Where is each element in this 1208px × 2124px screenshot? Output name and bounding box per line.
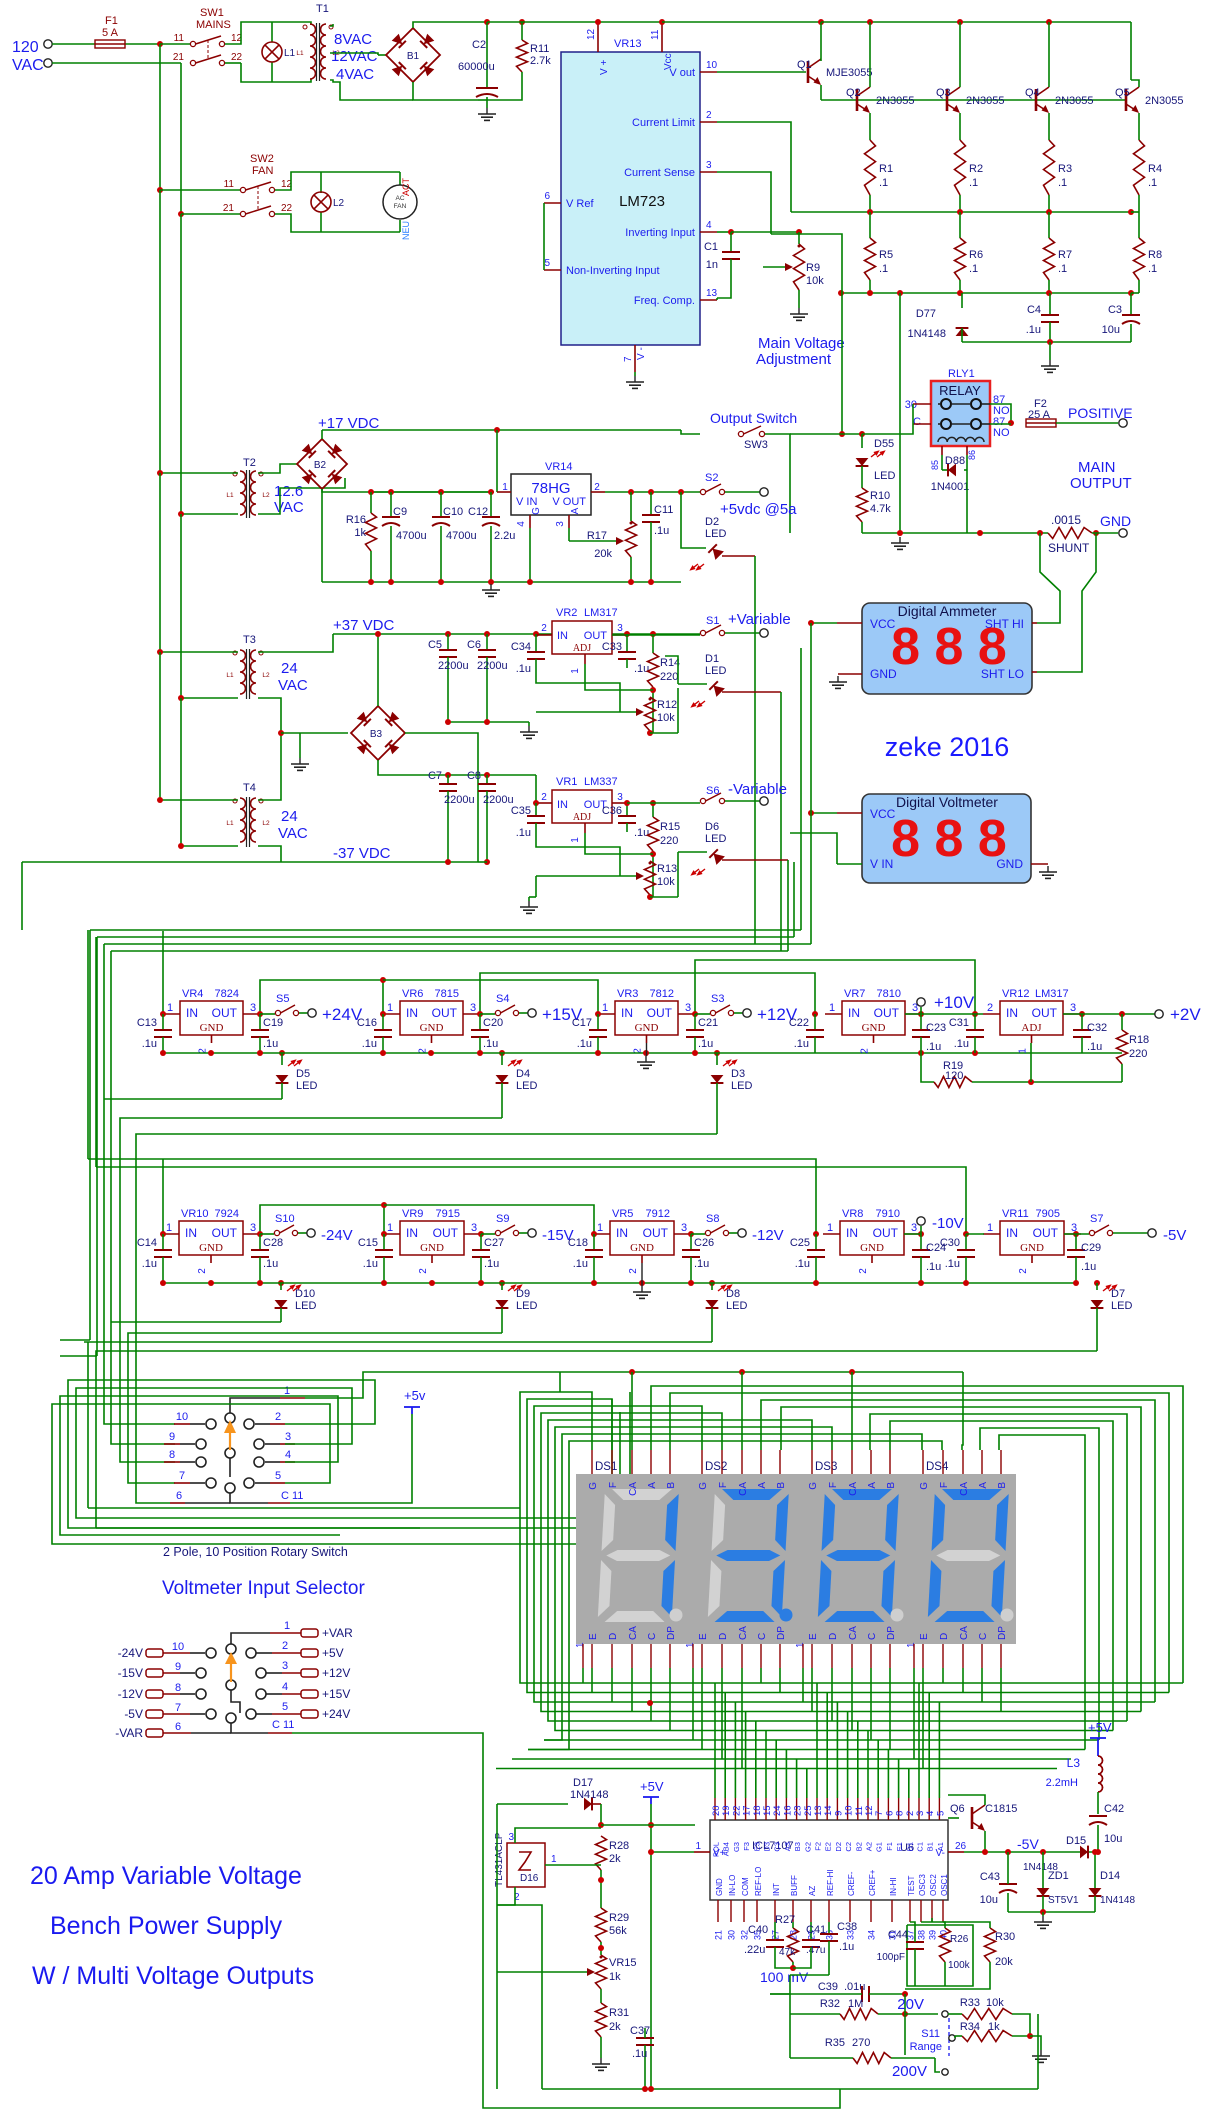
- svg-text:-5V: -5V: [124, 1707, 143, 1721]
- svg-text:Q3: Q3: [936, 87, 951, 99]
- svg-text:2200u: 2200u: [444, 794, 475, 806]
- svg-text:E1: E1: [895, 1842, 904, 1851]
- svg-text:3: 3: [471, 1222, 477, 1234]
- svg-text:21: 21: [223, 203, 235, 214]
- svg-text:C30: C30: [940, 1237, 960, 1249]
- svg-text:GND: GND: [199, 1242, 223, 1254]
- svg-text:C15: C15: [358, 1237, 378, 1249]
- svg-text:C10: C10: [443, 506, 463, 518]
- svg-text:26: 26: [955, 1841, 967, 1852]
- svg-text:C3: C3: [773, 1842, 782, 1852]
- svg-text:.1u: .1u: [839, 1941, 854, 1953]
- svg-text:G: G: [808, 1482, 819, 1490]
- svg-text:L1: L1: [226, 820, 234, 827]
- svg-text:.1: .1: [1058, 263, 1067, 275]
- svg-text:OUT: OUT: [433, 1226, 459, 1240]
- svg-text:C7: C7: [428, 770, 442, 782]
- svg-text:VR10: VR10: [181, 1208, 209, 1220]
- svg-text:B3: B3: [793, 1842, 802, 1851]
- svg-text:24: 24: [281, 808, 298, 825]
- svg-text:3: 3: [911, 1222, 917, 1234]
- svg-text:Freq. Comp.: Freq. Comp.: [634, 295, 695, 307]
- svg-text:GND: GND: [200, 1022, 224, 1034]
- svg-text:3: 3: [617, 623, 623, 634]
- svg-text:SHUNT: SHUNT: [1048, 541, 1090, 555]
- svg-text:VR1: VR1: [556, 776, 577, 788]
- svg-text:1k: 1k: [354, 527, 366, 539]
- svg-text:LM317: LM317: [584, 607, 618, 619]
- svg-text:IN: IN: [1006, 1006, 1018, 1020]
- svg-text:4.7k: 4.7k: [870, 503, 891, 515]
- svg-text:zeke 2016: zeke 2016: [885, 732, 1010, 762]
- svg-text:Range: Range: [910, 2041, 942, 2053]
- svg-text:100pF: 100pF: [877, 1952, 905, 1963]
- svg-text:A3: A3: [783, 1842, 792, 1851]
- svg-text:C36: C36: [602, 805, 622, 817]
- svg-text:C17: C17: [572, 1017, 592, 1029]
- svg-text:39: 39: [928, 1930, 938, 1940]
- svg-text:.1: .1: [1148, 177, 1157, 189]
- svg-text:VAC: VAC: [278, 825, 308, 842]
- svg-text:.1: .1: [1058, 177, 1067, 189]
- svg-text:C2: C2: [472, 39, 486, 51]
- svg-text:1: 1: [575, 1642, 586, 1648]
- svg-text:-37 VDC: -37 VDC: [333, 845, 391, 862]
- svg-text:B: B: [886, 1482, 897, 1489]
- svg-text:.1u: .1u: [516, 827, 531, 839]
- svg-text:4VAC: 4VAC: [336, 66, 374, 83]
- svg-text:OSC1: OSC1: [940, 1874, 949, 1896]
- svg-text:S2: S2: [705, 472, 718, 484]
- svg-text:LED: LED: [1111, 1300, 1132, 1312]
- svg-text:9: 9: [175, 1661, 181, 1673]
- svg-text:2.7k: 2.7k: [530, 55, 551, 67]
- svg-text:.1u: .1u: [795, 1258, 810, 1270]
- svg-text:7912: 7912: [646, 1208, 670, 1220]
- svg-text:R8: R8: [1148, 249, 1162, 261]
- svg-text:C11: C11: [654, 504, 673, 516]
- svg-text:F2: F2: [814, 1842, 823, 1851]
- svg-text:8 8 8: 8 8 8: [891, 618, 1007, 676]
- svg-text:L1: L1: [226, 672, 234, 679]
- svg-text:IN-HI: IN-HI: [889, 1877, 898, 1896]
- svg-text:120: 120: [945, 1070, 963, 1082]
- svg-text:34: 34: [867, 1930, 877, 1940]
- svg-text:Main Voltage: Main Voltage: [758, 335, 845, 352]
- svg-text:R29: R29: [609, 1912, 629, 1924]
- svg-text:10k: 10k: [657, 876, 675, 888]
- svg-text:L2: L2: [333, 198, 345, 209]
- svg-text:3: 3: [706, 160, 712, 171]
- svg-text:C16: C16: [357, 1017, 377, 1029]
- svg-text:C32: C32: [1087, 1022, 1107, 1034]
- svg-text:1: 1: [829, 1002, 835, 1014]
- svg-text:R5: R5: [879, 249, 893, 261]
- svg-text:A: A: [570, 507, 581, 514]
- svg-text:LED: LED: [731, 1080, 752, 1092]
- svg-text:D9: D9: [516, 1288, 530, 1300]
- svg-text:8VAC: 8VAC: [334, 31, 372, 48]
- svg-text:2k: 2k: [609, 1853, 621, 1865]
- svg-text:8 8 8: 8 8 8: [891, 810, 1007, 868]
- svg-text:56k: 56k: [609, 1925, 627, 1937]
- svg-text:C4: C4: [1027, 304, 1041, 316]
- svg-text:GND: GND: [1020, 1242, 1044, 1254]
- svg-text:C44: C44: [888, 1929, 908, 1941]
- svg-text:CA: CA: [848, 1626, 859, 1640]
- svg-text:C14: C14: [137, 1237, 157, 1249]
- svg-text:GND: GND: [420, 1242, 444, 1254]
- svg-text:+5V: +5V: [640, 1779, 664, 1794]
- svg-text:OUTPUT: OUTPUT: [1070, 475, 1132, 492]
- svg-text:AB4: AB4: [722, 1842, 731, 1856]
- svg-text:D15: D15: [1066, 1835, 1086, 1847]
- svg-text:D2: D2: [705, 516, 719, 528]
- svg-text:IN: IN: [186, 1006, 198, 1020]
- svg-text:SW2: SW2: [250, 153, 274, 165]
- svg-text:7812: 7812: [650, 988, 674, 1000]
- svg-text:R30: R30: [995, 1931, 1015, 1943]
- svg-text:CA: CA: [628, 1482, 639, 1496]
- svg-text:C31: C31: [949, 1017, 969, 1029]
- svg-text:.1: .1: [879, 263, 888, 275]
- svg-text:.1: .1: [969, 263, 978, 275]
- svg-text:D55: D55: [874, 438, 894, 450]
- svg-text:.1u: .1u: [1081, 1261, 1096, 1273]
- svg-text:Adjustment: Adjustment: [756, 351, 832, 368]
- svg-text:C1: C1: [704, 241, 718, 253]
- svg-text:100k: 100k: [948, 1960, 971, 1971]
- svg-text:GND: GND: [1100, 513, 1131, 529]
- svg-text:10u: 10u: [1104, 1833, 1122, 1845]
- svg-text:COM: COM: [741, 1877, 750, 1896]
- svg-text:S3: S3: [711, 993, 724, 1005]
- svg-text:T3: T3: [243, 634, 256, 646]
- svg-text:V IN: V IN: [870, 857, 893, 871]
- svg-text:C23: C23: [926, 1022, 946, 1034]
- svg-text:DP: DP: [666, 1626, 677, 1640]
- svg-text:IN: IN: [616, 1226, 628, 1240]
- svg-text:7: 7: [179, 1470, 185, 1482]
- svg-text:DS2: DS2: [705, 1461, 727, 1473]
- svg-text:10k: 10k: [657, 712, 675, 724]
- svg-text:.1u: .1u: [484, 1258, 499, 1270]
- svg-text:OSC2: OSC2: [929, 1874, 938, 1896]
- svg-text:NO: NO: [993, 427, 1010, 439]
- svg-text:DS3: DS3: [815, 1461, 837, 1473]
- svg-text:78HG: 78HG: [531, 480, 570, 497]
- svg-text:6: 6: [544, 191, 550, 202]
- svg-text:7810: 7810: [877, 988, 901, 1000]
- svg-text:R26: R26: [950, 1934, 969, 1945]
- svg-text:3: 3: [250, 1222, 256, 1234]
- svg-text:.1u: .1u: [362, 1038, 377, 1050]
- svg-text:IN: IN: [557, 630, 568, 642]
- svg-text:Voltmeter Input Selector: Voltmeter Input Selector: [162, 1578, 365, 1599]
- svg-text:E3: E3: [752, 1842, 761, 1851]
- svg-text:D14: D14: [1100, 1870, 1120, 1882]
- svg-text:VR6: VR6: [402, 988, 423, 1000]
- svg-text:IN: IN: [406, 1226, 418, 1240]
- svg-text:R14: R14: [660, 657, 680, 669]
- svg-text:CA: CA: [738, 1482, 749, 1496]
- svg-text:R12: R12: [657, 699, 677, 711]
- svg-text:C43: C43: [980, 1871, 1000, 1883]
- svg-text:.1: .1: [1148, 263, 1157, 275]
- svg-text:1: 1: [987, 1222, 993, 1234]
- svg-text:C1815: C1815: [985, 1803, 1017, 1815]
- svg-text:47k: 47k: [779, 1947, 796, 1958]
- svg-text:2: 2: [706, 110, 712, 121]
- svg-text:C40: C40: [748, 1924, 768, 1936]
- svg-text:G3: G3: [732, 1842, 741, 1852]
- svg-text:2: 2: [275, 1411, 281, 1423]
- svg-text:ADJ: ADJ: [573, 643, 591, 654]
- svg-text:22: 22: [231, 52, 243, 63]
- svg-text:.1u: .1u: [142, 1038, 157, 1050]
- svg-text:IN: IN: [557, 799, 568, 811]
- svg-text:F: F: [718, 1482, 729, 1488]
- svg-text:W / Multi Voltage Outputs: W / Multi Voltage Outputs: [32, 1962, 314, 1990]
- svg-text:+5V: +5V: [322, 1646, 344, 1660]
- svg-text:B: B: [666, 1482, 677, 1489]
- svg-text:R35: R35: [825, 2037, 845, 2049]
- svg-text:ST5V1: ST5V1: [1048, 1895, 1079, 1906]
- svg-text:SW3: SW3: [744, 439, 768, 451]
- svg-text:Q1: Q1: [797, 59, 812, 71]
- svg-text:120: 120: [12, 39, 39, 56]
- svg-text:OUT: OUT: [212, 1006, 238, 1020]
- svg-text:REF-LO: REF-LO: [754, 1867, 763, 1896]
- svg-text:3: 3: [617, 792, 623, 803]
- svg-text:DP: DP: [886, 1626, 897, 1640]
- svg-text:Output Switch: Output Switch: [710, 410, 797, 426]
- svg-text:LED: LED: [705, 665, 726, 677]
- svg-text:.1u: .1u: [634, 663, 649, 675]
- svg-text:2.2mH: 2.2mH: [1046, 1777, 1078, 1789]
- svg-text:CREF+: CREF+: [868, 1869, 877, 1896]
- svg-text:CREF-: CREF-: [847, 1871, 856, 1896]
- svg-text:1n: 1n: [706, 259, 718, 271]
- svg-text:R16: R16: [346, 514, 366, 526]
- svg-text:2: 2: [418, 1268, 429, 1274]
- svg-text:TL431ACLP: TL431ACLP: [494, 1832, 505, 1887]
- svg-text:20V: 20V: [897, 1996, 924, 2013]
- svg-text:GND: GND: [420, 1022, 444, 1034]
- svg-text:FAN: FAN: [394, 203, 407, 210]
- svg-text:7: 7: [623, 356, 634, 362]
- svg-text:100 mV: 100 mV: [760, 1969, 809, 1985]
- svg-text:Q6: Q6: [950, 1803, 965, 1815]
- svg-text:.1u: .1u: [794, 1038, 809, 1050]
- svg-text:C42: C42: [1104, 1803, 1124, 1815]
- svg-text:VR5: VR5: [612, 1208, 633, 1220]
- svg-text:DP: DP: [776, 1626, 787, 1640]
- svg-text:22: 22: [281, 203, 293, 214]
- svg-text:+15V: +15V: [322, 1687, 350, 1701]
- svg-text:LED: LED: [705, 528, 726, 540]
- svg-text:ACT: ACT: [401, 177, 411, 196]
- svg-text:A: A: [647, 1482, 658, 1489]
- svg-text:C26: C26: [694, 1237, 714, 1249]
- svg-text:220: 220: [660, 835, 678, 847]
- svg-text:10k: 10k: [806, 275, 824, 287]
- svg-text:D1: D1: [705, 653, 719, 665]
- svg-text:VR14: VR14: [545, 461, 573, 473]
- svg-text:VR9: VR9: [402, 1208, 423, 1220]
- svg-text:LED: LED: [874, 470, 895, 482]
- svg-text:V Ref: V Ref: [566, 198, 594, 210]
- svg-text:CA: CA: [848, 1482, 859, 1496]
- svg-text:R31: R31: [609, 2007, 629, 2019]
- svg-text:R7: R7: [1058, 249, 1072, 261]
- svg-text:POL: POL: [712, 1842, 721, 1857]
- svg-text:R13: R13: [657, 863, 677, 875]
- svg-text:V +: V +: [599, 60, 610, 75]
- svg-text:D88: D88: [945, 455, 965, 467]
- svg-text:12: 12: [586, 28, 597, 40]
- svg-text:VAC: VAC: [278, 677, 308, 694]
- svg-text:A: A: [867, 1482, 878, 1489]
- svg-text:6: 6: [176, 1490, 182, 1502]
- svg-text:LM723: LM723: [619, 193, 665, 210]
- svg-text:GND: GND: [630, 1242, 654, 1254]
- svg-text:11: 11: [174, 33, 185, 44]
- svg-text:CA: CA: [959, 1626, 970, 1640]
- svg-text:+2V: +2V: [1170, 1005, 1201, 1024]
- svg-text:11: 11: [224, 179, 235, 190]
- svg-text:F1: F1: [105, 15, 118, 27]
- svg-text:FAN: FAN: [252, 165, 273, 177]
- svg-text:T4: T4: [243, 782, 256, 794]
- svg-text:1: 1: [387, 1222, 393, 1234]
- svg-text:F1: F1: [885, 1842, 894, 1851]
- svg-text:+5vdc @5a: +5vdc @5a: [720, 501, 797, 518]
- svg-text:.1u: .1u: [632, 2048, 647, 2060]
- svg-text:.1u: .1u: [363, 1258, 378, 1270]
- svg-text:.47u: .47u: [806, 1945, 825, 1956]
- svg-text:1N4148: 1N4148: [907, 328, 946, 340]
- svg-text:Bench Power Supply: Bench Power Supply: [50, 1912, 283, 1940]
- svg-text:R27: R27: [775, 1914, 795, 1926]
- svg-text:-12V: -12V: [118, 1687, 143, 1701]
- svg-text:C34: C34: [511, 641, 531, 653]
- svg-text:C18: C18: [568, 1237, 588, 1249]
- svg-text:1: 1: [1018, 1048, 1029, 1054]
- svg-text:IN: IN: [1006, 1226, 1018, 1240]
- svg-text:C1: C1: [916, 1842, 925, 1852]
- svg-text:1: 1: [597, 1222, 603, 1234]
- svg-text:.1u: .1u: [634, 827, 649, 839]
- svg-text:2.2u: 2.2u: [494, 530, 515, 542]
- svg-text:.1u: .1u: [1087, 1041, 1102, 1053]
- svg-text:IN: IN: [185, 1226, 197, 1240]
- svg-text:MJE3055: MJE3055: [826, 67, 872, 79]
- svg-text:2: 2: [541, 792, 547, 803]
- svg-text:5 A: 5 A: [102, 27, 119, 39]
- svg-text:Current Sense: Current Sense: [624, 167, 695, 179]
- svg-text:85: 85: [930, 460, 940, 470]
- svg-text:2: 2: [541, 623, 547, 634]
- svg-text:D10: D10: [295, 1288, 315, 1300]
- svg-text:B: B: [776, 1482, 787, 1489]
- svg-text:8: 8: [175, 1682, 181, 1694]
- svg-text:.1u: .1u: [926, 1261, 941, 1273]
- svg-text:C37: C37: [630, 2025, 650, 2037]
- svg-text:1N4148: 1N4148: [1100, 1895, 1135, 1906]
- svg-text:V -: V -: [636, 347, 647, 360]
- svg-text:ADJ: ADJ: [573, 812, 591, 823]
- svg-text:7824: 7824: [215, 988, 239, 1000]
- svg-text:.1u: .1u: [142, 1258, 157, 1270]
- svg-text:4: 4: [516, 521, 527, 527]
- svg-text:2 Pole, 10 Position Rotary Swi: 2 Pole, 10 Position Rotary Switch: [163, 1545, 348, 1559]
- svg-text:2: 2: [282, 1640, 288, 1652]
- svg-text:3: 3: [555, 521, 566, 527]
- svg-text:S1: S1: [706, 615, 719, 627]
- svg-text:2: 2: [1018, 1268, 1029, 1274]
- svg-text:IN: IN: [406, 1006, 418, 1020]
- svg-text:7910: 7910: [876, 1208, 900, 1220]
- svg-text:20k: 20k: [995, 1956, 1013, 1968]
- svg-text:L2: L2: [262, 820, 270, 827]
- svg-text:4700u: 4700u: [396, 530, 427, 542]
- svg-text:2k: 2k: [609, 2021, 621, 2033]
- svg-text:.1: .1: [879, 177, 888, 189]
- svg-text:1: 1: [906, 1642, 917, 1648]
- svg-text:-5V: -5V: [1163, 1227, 1186, 1244]
- svg-text:L2: L2: [262, 672, 270, 679]
- svg-text:R2: R2: [969, 163, 983, 175]
- svg-text:+5V: +5V: [1088, 1720, 1112, 1735]
- svg-text:C9: C9: [393, 506, 407, 518]
- svg-text:TEST: TEST: [907, 1875, 916, 1896]
- svg-text:+Variable: +Variable: [728, 611, 791, 628]
- svg-text:L1: L1: [226, 492, 234, 499]
- svg-text:7: 7: [175, 1702, 181, 1714]
- svg-text:8: 8: [169, 1449, 175, 1461]
- svg-text:.1u: .1u: [694, 1258, 709, 1270]
- svg-text:C13: C13: [137, 1017, 157, 1029]
- svg-text:L1: L1: [284, 48, 296, 59]
- svg-text:2200u: 2200u: [483, 794, 514, 806]
- svg-text:V IN: V IN: [516, 496, 537, 508]
- svg-text:A2: A2: [865, 1842, 874, 1851]
- svg-text:C21: C21: [698, 1017, 718, 1029]
- svg-text:1: 1: [166, 1222, 172, 1234]
- svg-text:2: 2: [858, 1268, 869, 1274]
- svg-text:BUFF: BUFF: [790, 1875, 799, 1896]
- svg-text:2200u: 2200u: [477, 660, 508, 672]
- svg-text:7915: 7915: [436, 1208, 460, 1220]
- svg-text:.1u: .1u: [698, 1038, 713, 1050]
- svg-text:GND: GND: [715, 1878, 724, 1896]
- svg-text:LM337: LM337: [584, 776, 618, 788]
- svg-text:R6: R6: [969, 249, 983, 261]
- svg-text:OUT: OUT: [873, 1226, 899, 1240]
- svg-text:CA: CA: [959, 1482, 970, 1496]
- svg-text:B1: B1: [926, 1842, 935, 1851]
- svg-text:OUT: OUT: [643, 1226, 669, 1240]
- svg-text:V out: V out: [669, 67, 695, 79]
- svg-text:OUT: OUT: [647, 1006, 673, 1020]
- svg-text:.1u: .1u: [263, 1038, 278, 1050]
- svg-text:E2: E2: [824, 1842, 833, 1851]
- svg-text:R32: R32: [820, 1998, 840, 2010]
- svg-text:SW1: SW1: [200, 7, 224, 19]
- svg-text:VR11: VR11: [1002, 1208, 1029, 1220]
- svg-text:S7: S7: [1090, 1213, 1103, 1225]
